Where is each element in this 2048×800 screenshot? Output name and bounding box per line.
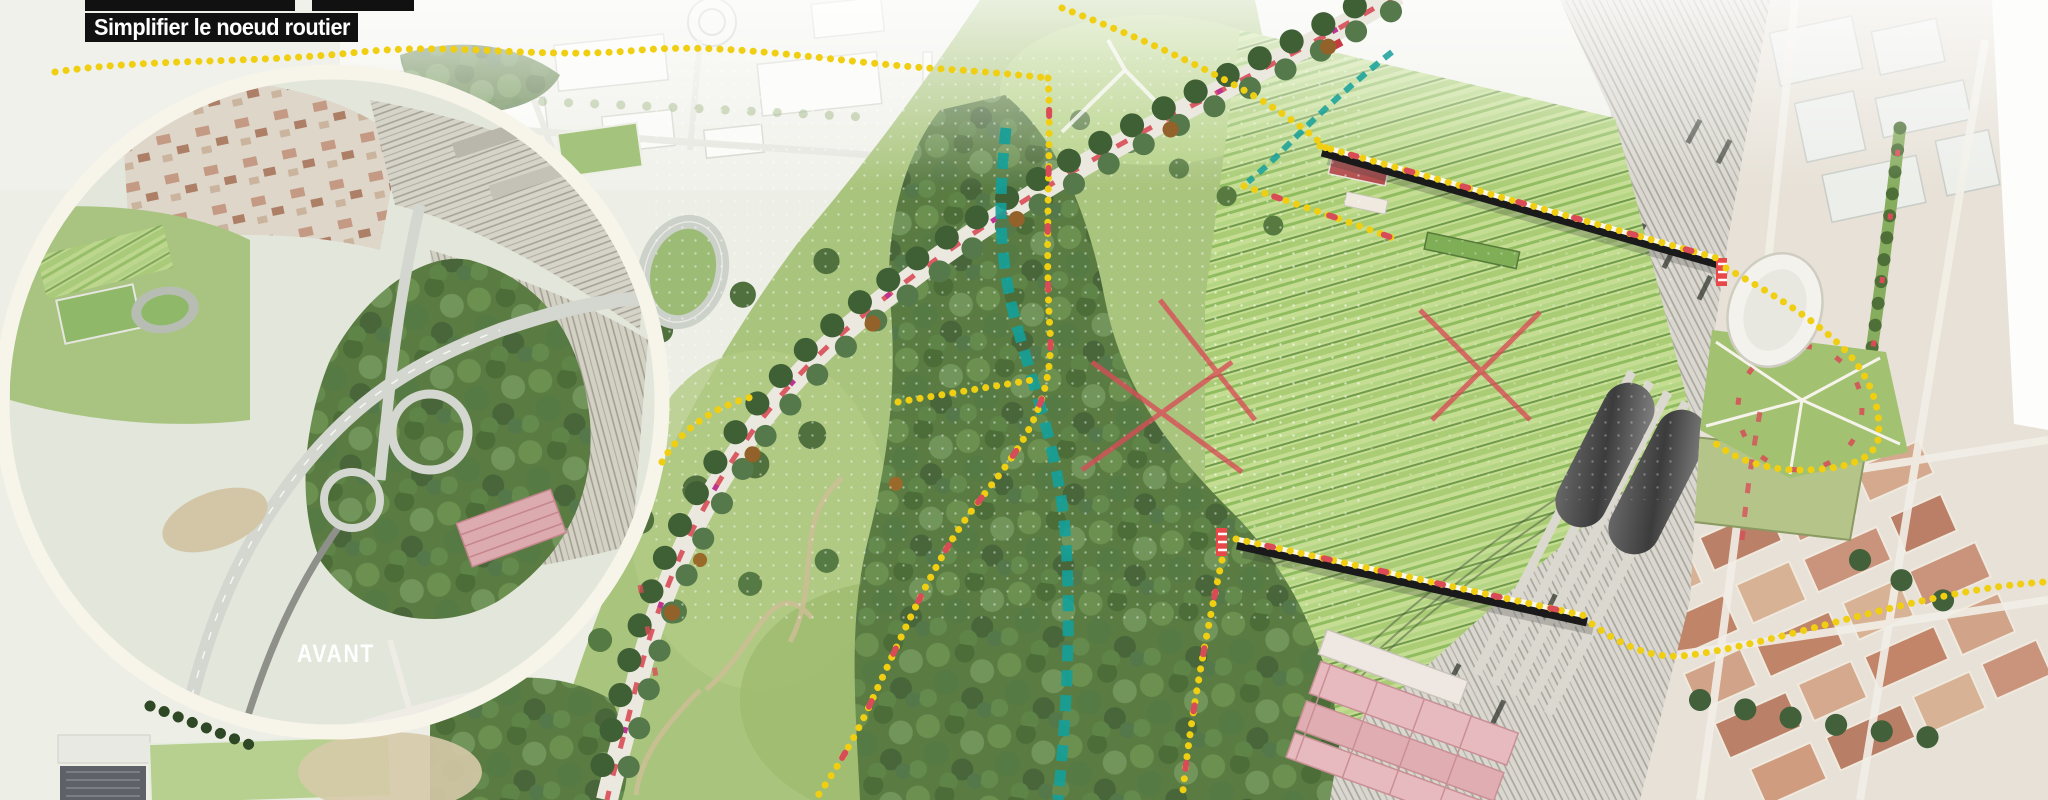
- banner-title: Simplifier le noeud routier: [94, 14, 351, 40]
- dot-grid-overlay-2: [1210, 240, 1680, 500]
- title-bar-cut: [85, 0, 295, 11]
- masterplan-poster: Simplifier le noeud routier AVANT: [0, 0, 2048, 800]
- aerial-map: Simplifier le noeud routier AVANT: [0, 0, 2048, 800]
- title-bar-cut-2: [312, 0, 414, 11]
- avant-label: AVANT: [297, 640, 375, 668]
- parking-lot: [58, 735, 150, 763]
